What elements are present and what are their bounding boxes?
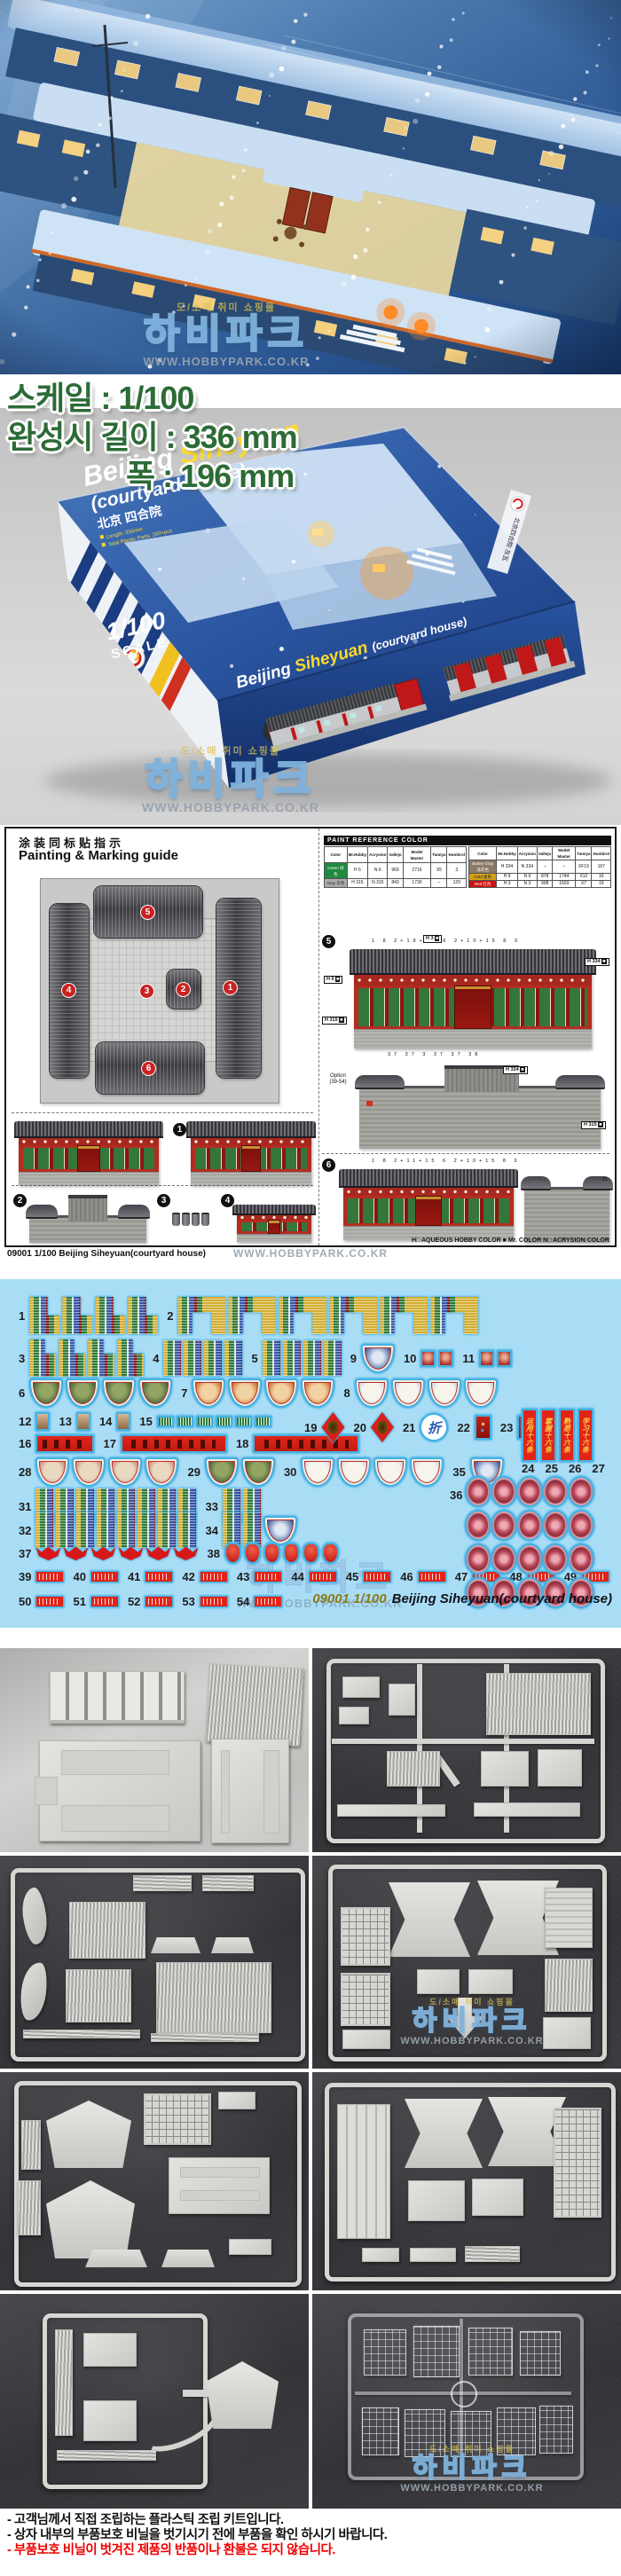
- paint-chip: H 3 ■: [423, 935, 442, 943]
- decal-item: [205, 1457, 239, 1487]
- decal-item: [90, 1596, 119, 1607]
- decal-item: [337, 1457, 371, 1487]
- decal-item: [102, 1378, 136, 1408]
- decal-number-28: 28: [19, 1465, 31, 1479]
- decal-strip-numbers: 24252627: [522, 1462, 605, 1475]
- paint-chip: H 334 ■: [503, 1066, 528, 1074]
- decal-item: [361, 1344, 395, 1373]
- section-marker-5: 5: [322, 935, 335, 948]
- elevation-5-wall: [359, 1086, 601, 1149]
- decal-medallion: [491, 1543, 517, 1575]
- decal-item: [63, 1546, 88, 1560]
- sprue-photo-5: [0, 2072, 309, 2290]
- decal-item: [235, 1416, 252, 1427]
- sprue-photo-7: [0, 2294, 309, 2509]
- siheyuan-night-scene-illustration: [0, 0, 621, 374]
- decal-number-16: 16: [19, 1437, 31, 1450]
- decal-item: [121, 1434, 227, 1453]
- decal-number-30: 30: [284, 1465, 296, 1479]
- plan-number-4: 4: [62, 984, 75, 997]
- guide-divider: [318, 829, 319, 1245]
- guide-footer-label: 09001 1/100 Beijing Siheyuan(courtyard h…: [7, 1249, 206, 1259]
- decal-medallion: [516, 1510, 543, 1541]
- decal-item: [324, 1340, 342, 1376]
- decal-item: [421, 1350, 436, 1367]
- decal-item: [90, 1546, 115, 1560]
- guide-title-english: Painting & Marking guide: [19, 848, 178, 863]
- decal-strip: 熟悉十六条: [559, 1409, 575, 1462]
- decal-item: [263, 1516, 297, 1545]
- decal-item: [145, 1457, 178, 1487]
- decal-number-4: 4: [153, 1352, 159, 1365]
- decal-number-36: 36: [450, 1488, 462, 1502]
- decal-item: [254, 1571, 282, 1583]
- decal-item: [363, 1571, 391, 1583]
- decal-medallion: [491, 1476, 517, 1507]
- notice-line: - 상자 내부의 부품보호 비닐을 벗기시기 전에 부품을 확인 하시기 바랍니…: [0, 2528, 621, 2543]
- decal-medallion: [542, 1543, 569, 1575]
- decal-item: [128, 1297, 158, 1334]
- decal-number-10: 10: [404, 1352, 416, 1365]
- decal-medallion: [491, 1510, 517, 1541]
- decal-item: [224, 1543, 241, 1564]
- decal-item: 折: [420, 1413, 448, 1441]
- decal-sheet: 123459101167812131415161718192021折222328…: [0, 1279, 621, 1628]
- decal-item: [66, 1378, 99, 1408]
- decal-item: [301, 1457, 334, 1487]
- elevation-5-callouts: 1 8 2+19+15 6 2+10+15 8 3: [372, 939, 521, 944]
- kit-box-3d: Beijing Siheyuan (courtyard house) 北京 四合…: [0, 408, 621, 825]
- decal-number-44: 44: [291, 1570, 303, 1583]
- decal-item: [301, 1378, 334, 1408]
- section-marker-6: 6: [322, 1158, 335, 1172]
- decal-number-35: 35: [452, 1465, 465, 1479]
- decal-number-52: 52: [128, 1595, 140, 1608]
- decal-number-34: 34: [205, 1524, 217, 1537]
- plan-number-1: 1: [224, 981, 237, 994]
- decal-number-8: 8: [343, 1386, 350, 1400]
- decal-item: [116, 1412, 130, 1431]
- decal-medallion: [568, 1510, 594, 1541]
- spec-width: 폭 : 196 mm: [126, 451, 294, 497]
- decal-number-11: 11: [462, 1352, 475, 1365]
- decal-item: [72, 1457, 106, 1487]
- decal-item: [145, 1596, 173, 1607]
- decal-row: 28293035: [12, 1457, 504, 1487]
- decal-item: [145, 1546, 170, 1560]
- paint-chip: H 315 ■: [581, 1121, 606, 1129]
- decal-row: 192021折2223: [298, 1412, 534, 1442]
- decal-item: [29, 1339, 56, 1377]
- decal-row: 12: [12, 1297, 478, 1334]
- decal-row: 12131415: [12, 1412, 271, 1431]
- decal-item: [157, 1416, 174, 1427]
- decal-number-1: 1: [19, 1309, 25, 1323]
- decal-item: [283, 1340, 301, 1376]
- decal-item: [173, 1546, 198, 1560]
- sprue-photo-2: [312, 1648, 621, 1852]
- decal-item: [35, 1546, 60, 1560]
- decal-number-29: 29: [187, 1465, 200, 1479]
- decal-item: [283, 1543, 300, 1564]
- elevation-1a: [19, 1121, 159, 1185]
- decal-item: [108, 1457, 142, 1487]
- elevation-3-vats: [171, 1212, 210, 1231]
- decal-item: [303, 1340, 321, 1376]
- decal-item: [244, 1543, 261, 1564]
- decal-item: [391, 1378, 425, 1408]
- elevation-4: [237, 1205, 311, 1242]
- decal-item: [438, 1350, 453, 1367]
- decal-row: 3738: [12, 1543, 339, 1564]
- decal-item: [475, 1415, 491, 1440]
- decal-strip: 掌握十六条: [540, 1409, 556, 1462]
- decal-item: [29, 1297, 59, 1334]
- option-note: Option(39-54): [320, 1073, 356, 1086]
- decal-item: [322, 1543, 339, 1564]
- decal-number-6: 6: [19, 1386, 25, 1400]
- decal-number-9: 9: [350, 1352, 357, 1365]
- sprue-photo-grid: 도/소매 취미 쇼핑몰 하비파크 WWW.HOBBYPARK.CO.KR 도/소…: [0, 1648, 621, 2509]
- decal-number-41: 41: [128, 1570, 140, 1583]
- box-art-photo: Beijing Siheyuan (courtyard house) 北京 四合…: [0, 408, 621, 825]
- decal-item: [90, 1571, 119, 1583]
- decal-medallion: [465, 1543, 491, 1575]
- decal-number-3: 3: [19, 1352, 25, 1365]
- elevation-6-wall: 21: [524, 1187, 609, 1243]
- decal-number-40: 40: [73, 1570, 85, 1583]
- decal-number-37: 37: [19, 1547, 31, 1560]
- decal-item: [279, 1297, 326, 1334]
- decal-item: [118, 1546, 143, 1560]
- decal-item: [254, 1596, 282, 1607]
- decal-number-7: 7: [181, 1386, 187, 1400]
- notice-line: - 부품보호 비닐이 벗겨진 제품의 반품이나 환불은 되지 않습니다.: [0, 2543, 621, 2558]
- decal-number-53: 53: [182, 1595, 194, 1608]
- paint-chip: H 334 ■: [585, 958, 609, 966]
- decal-item: [29, 1378, 63, 1408]
- decal-item: [177, 1297, 225, 1334]
- plan-courtyard: [83, 918, 232, 1062]
- decal-number-20: 20: [353, 1421, 366, 1434]
- color-system-legend: H□ AQUEOUS HOBBY COLOR ■ Mr. COLOR N□ AC…: [412, 1237, 609, 1244]
- sprue-photo-4: [312, 1856, 621, 2069]
- decal-vertical-strips: 运用十六条掌握十六条熟悉十六条学习十六条: [522, 1409, 593, 1462]
- plan-number-3: 3: [140, 985, 153, 998]
- decal-item: [76, 1412, 90, 1431]
- decal-strip: 学习十六条: [578, 1409, 593, 1462]
- decal-number-54: 54: [237, 1595, 249, 1608]
- decal-item: [380, 1297, 428, 1334]
- decal-item: [59, 1339, 85, 1377]
- decal-item: [200, 1596, 228, 1607]
- decal-number-38: 38: [207, 1547, 219, 1560]
- decal-medallion: [568, 1476, 594, 1507]
- decal-item: [35, 1434, 94, 1453]
- decal-number-32: 32: [19, 1524, 31, 1537]
- decal-item: [163, 1340, 181, 1376]
- decal-number-39: 39: [19, 1570, 31, 1583]
- decal-number-23: 23: [500, 1421, 513, 1434]
- decal-item: [464, 1378, 498, 1408]
- paint-table-body: ColorMr.HobbyAcrysionVallejoModel Master…: [324, 846, 611, 888]
- decal-item: [373, 1457, 407, 1487]
- decal-item: [192, 1378, 225, 1408]
- decal-item: [497, 1350, 512, 1367]
- paint-chip: H 6 ■: [324, 976, 342, 984]
- painting-guide-section: 涂装同标贴指示 Painting & Marking guide 1 2 3 4…: [0, 825, 621, 1261]
- decal-item: [321, 1412, 344, 1442]
- decal-item: [35, 1457, 69, 1487]
- decal-medallion: [568, 1543, 594, 1575]
- decal-item: [263, 1340, 280, 1376]
- decal-item: [355, 1378, 389, 1408]
- decal-item: [228, 1297, 276, 1334]
- decal-item: [329, 1297, 377, 1334]
- paint-reference-table: PAINT REFERENCE COLOR ColorMr.HobbyAcrys…: [324, 836, 611, 888]
- decal-number-5: 5: [251, 1352, 257, 1365]
- decal-item: [264, 1378, 298, 1408]
- decal-item: [204, 1340, 222, 1376]
- decal-item: [263, 1543, 280, 1564]
- decal-item: [184, 1340, 201, 1376]
- decal-number-33: 33: [205, 1500, 217, 1513]
- decal-number-26: 26: [569, 1462, 581, 1475]
- notice-line: - 고객님께서 직접 조립하는 플라스틱 조립 키트입니다.: [0, 2513, 621, 2528]
- decal-medallion: [516, 1476, 543, 1507]
- decal-number-21: 21: [403, 1421, 415, 1434]
- decal-row: 5051525354: [12, 1595, 282, 1608]
- decal-number-43: 43: [237, 1570, 249, 1583]
- decal-item: [228, 1378, 262, 1408]
- decal-number-12: 12: [19, 1415, 31, 1428]
- decal-sheet-label: 09001 1/100Beijing Siheyuan(courtyard ho…: [312, 1591, 612, 1606]
- decal-number-46: 46: [400, 1570, 413, 1583]
- notice-text-section: - 고객님께서 직접 조립하는 플라스틱 조립 키트입니다.- 상자 내부의 부…: [0, 2509, 621, 2563]
- sprue-photo-6: [312, 2072, 621, 2290]
- decal-number-17: 17: [103, 1437, 115, 1450]
- decal-number-50: 50: [19, 1595, 31, 1608]
- hero-product-render: 도/소매 취미 쇼핑몰 하비파크 WWW.HOBBYPARK.CO.KR: [0, 0, 621, 374]
- paint-table-title: PAINT REFERENCE COLOR: [324, 836, 611, 845]
- decal-item: [95, 1297, 125, 1334]
- decal-item: [117, 1339, 144, 1377]
- decal-item: [145, 1571, 173, 1583]
- decal-item: [479, 1350, 494, 1367]
- decal-item: [371, 1412, 394, 1442]
- decal-item: [138, 1378, 172, 1408]
- elevation-5-facade: [354, 949, 592, 1048]
- elevation-1b: [191, 1121, 311, 1185]
- decal-item: [255, 1416, 271, 1427]
- decal-medallion-grid: [465, 1476, 591, 1608]
- decal-number-45: 45: [346, 1570, 358, 1583]
- section-marker-2: 2: [13, 1194, 27, 1207]
- decal-number-2: 2: [167, 1309, 173, 1323]
- decal-item: [410, 1457, 444, 1487]
- decal-item: [430, 1297, 478, 1334]
- decal-number-25: 25: [545, 1462, 557, 1475]
- decal-number-24: 24: [522, 1462, 534, 1475]
- sprue-photo-8-clear: [312, 2294, 621, 2509]
- decal-item: [428, 1378, 461, 1408]
- decal-number-51: 51: [73, 1595, 85, 1608]
- decal-row: 678: [12, 1378, 498, 1408]
- decal-item: [309, 1571, 337, 1583]
- decal-item: [196, 1416, 213, 1427]
- decal-number-18: 18: [236, 1437, 248, 1450]
- decal-item: [35, 1596, 64, 1607]
- plan-number-5: 5: [141, 906, 154, 919]
- decal-item: [241, 1457, 275, 1487]
- elevation-2: [29, 1215, 146, 1243]
- decal-number-15: 15: [139, 1415, 152, 1428]
- decal-item: [303, 1543, 319, 1564]
- decal-strip: 运用十六条: [522, 1409, 538, 1462]
- elevation-6-callouts: 1 8 2+11+15 6 2+10+15 8 3: [372, 1158, 521, 1164]
- decal-number-22: 22: [457, 1421, 469, 1434]
- decal-number-31: 31: [19, 1500, 31, 1513]
- decal-item: [177, 1416, 193, 1427]
- paint-chip: H 315 ■: [322, 1017, 347, 1025]
- elevation-5-part-numbers: 37 37 3 37 37 38: [388, 1052, 481, 1057]
- decal-item: [35, 1571, 64, 1583]
- decal-item: [224, 1340, 242, 1376]
- plan-number-2: 2: [177, 983, 190, 996]
- decal-medallion: [465, 1476, 491, 1507]
- painting-guide-document: 涂装同标贴指示 Painting & Marking guide 1 2 3 4…: [4, 827, 617, 1247]
- courtyard-plan-view: 1 2 3 4 5 6: [40, 878, 279, 1103]
- plan-number-6: 6: [142, 1062, 155, 1075]
- decal-number-42: 42: [182, 1570, 194, 1583]
- spec-text-section: 스케일 : 1/100 완성시 길이 : 336 mm 폭 : 196 mm: [0, 374, 621, 408]
- elevation-6-facade: [343, 1169, 514, 1240]
- section-marker-3: 3: [157, 1194, 170, 1207]
- decal-number-14: 14: [99, 1415, 112, 1428]
- decal-medallion: [465, 1510, 491, 1541]
- decal-item: [216, 1416, 232, 1427]
- decal-number-19: 19: [304, 1421, 317, 1434]
- decal-number-13: 13: [59, 1415, 71, 1428]
- decal-item: [88, 1339, 114, 1377]
- decal-medallion: [542, 1510, 569, 1541]
- section-marker-1: 1: [173, 1123, 186, 1136]
- decal-row: 34591011: [12, 1339, 512, 1377]
- decal-medallion: [516, 1543, 543, 1575]
- decal-number-27: 27: [592, 1462, 604, 1475]
- decal-item: [62, 1297, 92, 1334]
- sprue-photo-3: [0, 1856, 309, 2069]
- decal-medallion: [542, 1476, 569, 1507]
- decal-item: [418, 1571, 446, 1583]
- decal-item: [35, 1412, 50, 1431]
- sprue-photo-1: [0, 1648, 309, 1852]
- decal-item: [200, 1571, 228, 1583]
